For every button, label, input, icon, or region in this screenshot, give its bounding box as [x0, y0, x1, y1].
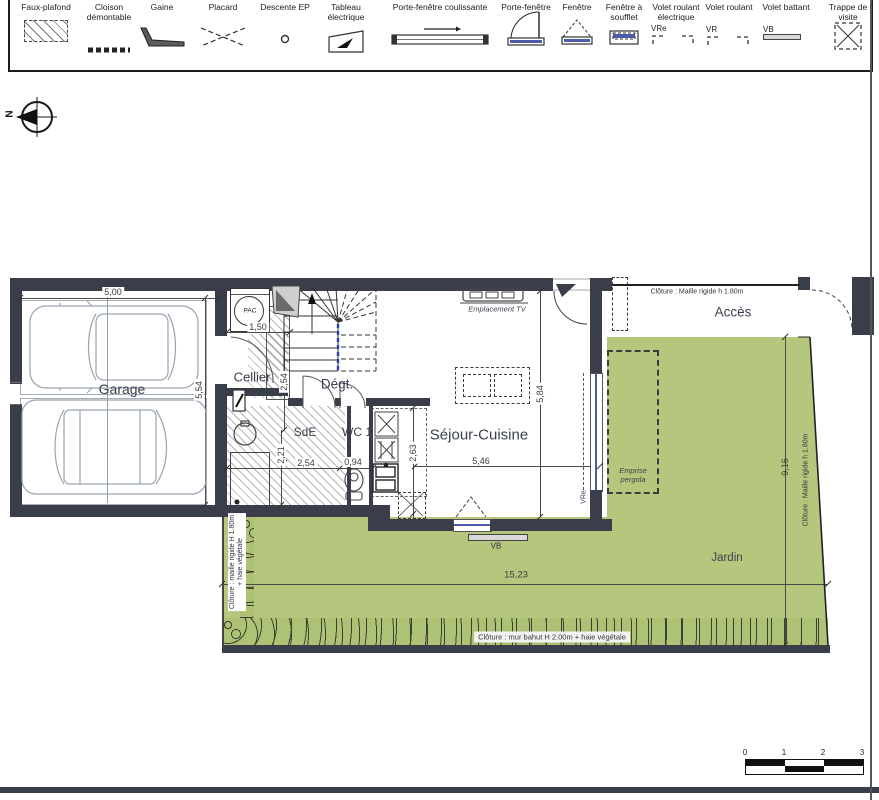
- legend-item-gaine: Gaine: [132, 3, 192, 51]
- dim-cellier-width: 1,50: [247, 322, 269, 332]
- dim-sejour-width: 5,46: [470, 456, 492, 466]
- gaine-icon: [132, 23, 192, 51]
- room-label-jardin: Jardin: [711, 552, 742, 564]
- volet-vre-label: VRe: [581, 490, 588, 504]
- area-label-acces: Accès: [715, 305, 752, 320]
- wall-garage-bottom: [10, 505, 224, 517]
- dim-sde-depth: 2,21: [276, 444, 286, 466]
- dim-line-jardin-depth: [785, 337, 786, 645]
- legend-label: Descente EP: [252, 3, 318, 13]
- wall-hall-segment-2: [335, 398, 341, 406]
- parking-divider-line: [107, 291, 108, 503]
- dim-sejour-depth: 5,84: [535, 383, 545, 405]
- wall-garage-divider-lower: [215, 384, 227, 517]
- fence-label-left-line2: + haie végétale: [237, 515, 245, 609]
- tableau-electrique-icon: [314, 28, 378, 56]
- scale-tick: 0: [743, 748, 747, 757]
- north-compass-icon: [16, 97, 57, 137]
- pergola-annotation: Emprise pergola: [610, 466, 656, 484]
- wall-garden-bottom-bar: [222, 645, 830, 653]
- volet-roulant-icon: VR: [696, 25, 762, 53]
- legend-label: Porte-fenêtre coulissante: [381, 3, 499, 13]
- wall-right-upper: [590, 291, 602, 373]
- volet-tag: VB: [763, 25, 817, 34]
- dim-line-sde-wc-width: [227, 468, 373, 469]
- descente-ep-icon: [252, 25, 318, 53]
- wall-top-main: [10, 278, 553, 291]
- scale-bar-body: [745, 759, 864, 775]
- compass-north-label: N: [5, 110, 16, 117]
- garage-door-jamb-1: [10, 382, 22, 383]
- legend-item-placard: Placard: [193, 3, 253, 51]
- floor-plan-page: Faux-plafond Cloison démontable Gaine Pl…: [0, 0, 879, 800]
- fenetre-icon: [551, 17, 603, 45]
- dim-wc-width: 0,94: [342, 457, 364, 467]
- scale-bar-ticks: 0 1 2 3: [745, 748, 866, 758]
- legend-item-descente-ep: Descente EP: [252, 3, 318, 53]
- dim-line-cellier-width: [227, 332, 290, 333]
- volet-battant-bar: [468, 534, 528, 541]
- legend-label: Volet battant: [755, 3, 817, 13]
- staircase: [284, 286, 376, 371]
- scale-segment: [746, 766, 785, 772]
- pac-label: PAC: [244, 308, 257, 315]
- dining-table-chair: [494, 374, 522, 397]
- legend-item-volet-battant: Volet battant VB: [755, 3, 817, 53]
- dim-sde-width: 2,54: [295, 458, 317, 468]
- volet-battant-icon: VB: [755, 25, 817, 53]
- volet-vb-label: VB: [491, 542, 502, 551]
- legend-item-fenetre: Fenêtre: [551, 3, 603, 45]
- scale-segment: [824, 766, 863, 772]
- wall-garage-left-upper: [10, 278, 22, 384]
- door-entrance: [553, 279, 590, 324]
- dim-line-sejour-width: [415, 466, 600, 467]
- room-label-cellier: Cellier: [234, 370, 271, 385]
- wall-garage-divider-upper: [215, 278, 227, 336]
- wall-garage-left-lower: [10, 404, 22, 517]
- legend-item-faux-plafond: Faux-plafond: [9, 3, 83, 45]
- fence-label-left-line1: Clôture : maille rigide H 1.80m: [229, 515, 237, 609]
- porte-fenetre-coulissante-icon: [381, 21, 499, 49]
- dim-jardin-depth: 9,16: [780, 456, 790, 478]
- fence-label-bottom: Clôture : mur bahut H 2.00m + haie végét…: [474, 632, 630, 643]
- trappe-de-visite-icon: [821, 22, 875, 50]
- dim-kitchen-depth: 2,63: [408, 442, 418, 464]
- scale-tick: 1: [782, 748, 786, 757]
- legend-item-tableau-electrique: Tableau électrique: [314, 3, 378, 56]
- wall-top-right-corner: [590, 278, 612, 291]
- legend-item-volet-roulant: Volet roulant VR: [696, 3, 762, 53]
- legend-item-porte-fenetre-coulissante: Porte-fenêtre coulissante: [381, 3, 499, 49]
- page-bottom-rule: [0, 787, 879, 793]
- scale-segment: [785, 766, 824, 772]
- volet-tag: VR: [706, 25, 762, 34]
- shower-tray: [230, 452, 270, 510]
- wall-house-bottom-left: [222, 505, 382, 517]
- trappe-de-visite-box: [398, 492, 426, 519]
- fence-label-right: Clôture : Maille rigide h 1.80m: [803, 434, 810, 527]
- legend-label: Faux-plafond: [9, 3, 83, 13]
- room-label-sde: SdE: [294, 425, 317, 439]
- room-label-degagement: Dégt.: [321, 377, 353, 392]
- legend-item-trappe-de-visite: Trappe de visite: [821, 3, 875, 50]
- dim-line-garage-width: [20, 298, 218, 299]
- garden-left-edge: [222, 517, 224, 645]
- legend-label: Placard: [193, 3, 253, 13]
- dim-garage-width: 5,00: [102, 287, 124, 297]
- tv-annotation: Emplacement TV: [468, 305, 526, 314]
- dim-hall-depth: 2,54: [279, 371, 289, 393]
- wall-hall-segment-3: [366, 398, 430, 406]
- legend-label: Gaine: [132, 3, 192, 13]
- vb-window-sejour: [453, 519, 492, 532]
- dim-line-jardin-width: [222, 584, 828, 585]
- pergola-line2: pergola: [610, 475, 656, 484]
- garage-door-jamb-2: [10, 404, 22, 405]
- legend-label: Tableau électrique: [314, 3, 378, 22]
- page-right-rule: [870, 0, 872, 800]
- bay-window-glazing: [595, 374, 597, 491]
- bay-window-sejour: [590, 373, 603, 492]
- tv-symbol: [460, 289, 528, 303]
- legend-bar: Faux-plafond Cloison démontable Gaine Pl…: [8, 0, 873, 72]
- wall-wc-kitchen-partition: [369, 406, 373, 507]
- parking-space-2: [20, 398, 207, 505]
- placard-icon: [193, 23, 253, 51]
- room-label-sejour-cuisine: Séjour-Cuisine: [430, 427, 528, 444]
- dining-table-chair: [463, 374, 491, 397]
- room-label-garage: Garage: [99, 381, 146, 397]
- wall-hall-segment-1: [288, 398, 303, 406]
- wall-sejour-bottom-left: [382, 519, 453, 531]
- dim-line-garage-depth: [205, 298, 206, 505]
- legend-label: Volet roulant: [696, 3, 762, 13]
- legend-label: Fenêtre: [551, 3, 603, 13]
- pac-vent: [231, 289, 269, 295]
- scale-bar: 0 1 2 3: [745, 748, 866, 778]
- dim-jardin-width: 15,23: [502, 570, 530, 581]
- volet-coffre-dashed-line: [583, 373, 584, 490]
- faux-plafond-icon: [9, 17, 83, 45]
- dim-garage-depth: 5,54: [194, 379, 204, 401]
- room-label-wc: WC 1: [342, 425, 372, 439]
- wall-right-lower: [590, 490, 602, 531]
- fenetre-soufflet-symbol: [456, 497, 486, 517]
- vb-window-glazing: [454, 524, 491, 526]
- fence-label-top: Clôture : Maille rigide h 1.80m: [651, 289, 744, 296]
- fence-top-line: [612, 284, 800, 286]
- scale-tick: 2: [821, 748, 825, 757]
- gate-portillon: [812, 290, 852, 330]
- fence-label-left: Clôture : maille rigide H 1.80m + haie v…: [228, 513, 246, 611]
- pergola-line1: Emprise: [610, 466, 656, 475]
- kitchen-counter-outline: [371, 408, 427, 497]
- scale-tick: 3: [860, 748, 864, 757]
